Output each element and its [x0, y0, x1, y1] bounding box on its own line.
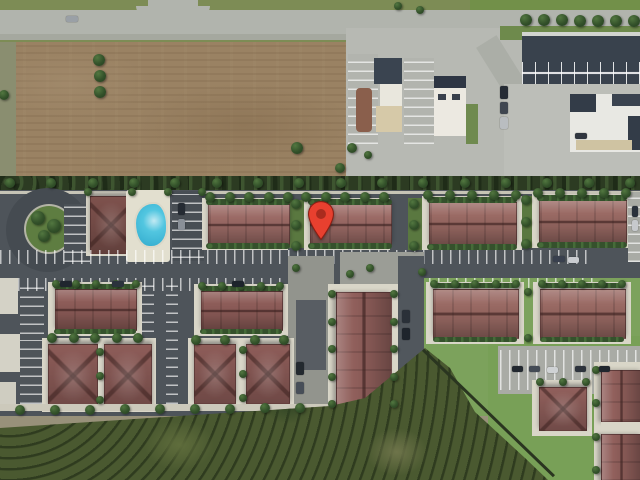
- tree: [460, 178, 470, 188]
- pin-icon: [308, 201, 334, 240]
- hedge: [206, 243, 290, 249]
- hedge: [540, 337, 624, 342]
- apartment-roof: [601, 434, 640, 480]
- tree: [625, 178, 635, 188]
- tree: [610, 15, 622, 27]
- tree: [94, 70, 106, 82]
- tree: [264, 192, 274, 202]
- restaurant-gable: [434, 76, 466, 88]
- tree: [328, 400, 336, 408]
- apartment-roof: [104, 344, 152, 408]
- tree: [409, 220, 419, 230]
- carport: [0, 334, 20, 372]
- tree: [292, 264, 300, 272]
- tree: [524, 334, 532, 342]
- tree: [501, 178, 511, 188]
- tree: [328, 318, 336, 326]
- car: [296, 382, 304, 394]
- tree: [128, 188, 136, 196]
- tree: [536, 378, 544, 386]
- tree: [218, 282, 226, 290]
- tree: [621, 188, 631, 198]
- tree: [112, 333, 122, 343]
- hedge: [537, 242, 627, 248]
- car: [500, 86, 508, 99]
- tree: [92, 280, 100, 288]
- tree: [133, 333, 143, 343]
- tree: [291, 241, 301, 251]
- retail-roof-dark: [612, 94, 640, 106]
- tree: [190, 404, 200, 414]
- car: [178, 219, 185, 230]
- tree: [366, 264, 374, 272]
- tree: [423, 190, 433, 200]
- apartment-roof: [201, 291, 283, 331]
- tree: [521, 217, 531, 227]
- tree: [574, 15, 586, 27]
- parking-col: [20, 340, 44, 404]
- field-edge: [0, 42, 16, 180]
- map-canvas[interactable]: [0, 0, 640, 480]
- tree: [512, 280, 520, 288]
- tree: [584, 178, 594, 188]
- tree: [364, 151, 372, 159]
- carport-roof: [522, 36, 640, 62]
- tree: [416, 6, 424, 14]
- tree: [239, 394, 247, 402]
- tree: [205, 192, 215, 202]
- tree: [347, 143, 357, 153]
- car: [296, 362, 304, 375]
- car: [575, 366, 586, 372]
- tree: [212, 178, 222, 188]
- pin-dot: [316, 209, 326, 219]
- hedge: [200, 329, 282, 334]
- apartment-roof: [194, 344, 236, 404]
- tree: [96, 348, 104, 356]
- apartment-roof: [540, 289, 626, 339]
- tree: [225, 192, 235, 202]
- tree: [340, 192, 350, 202]
- map-pin[interactable]: [308, 201, 334, 240]
- car: [60, 281, 72, 287]
- apartment-roof: [601, 370, 640, 422]
- tree: [533, 188, 543, 198]
- tree: [164, 188, 172, 196]
- tree: [291, 220, 301, 230]
- tree: [335, 163, 345, 173]
- drive-asphalt: [296, 300, 326, 370]
- apartment-roof: [48, 344, 98, 408]
- pool: [134, 202, 168, 248]
- car: [112, 281, 124, 287]
- tree: [52, 280, 60, 288]
- tree: [328, 345, 336, 353]
- tree: [492, 280, 500, 288]
- parking-col: [20, 282, 44, 334]
- car: [632, 206, 638, 217]
- tree: [467, 190, 477, 200]
- car: [402, 310, 410, 323]
- tree: [409, 241, 419, 251]
- tree: [328, 373, 336, 381]
- carport: [0, 382, 16, 406]
- tree: [379, 192, 389, 202]
- car: [402, 328, 410, 340]
- carport: [0, 278, 18, 314]
- tree: [96, 396, 104, 404]
- retail-roof-tan: [576, 140, 632, 150]
- hedge: [433, 337, 517, 342]
- tree: [599, 188, 609, 198]
- tree: [72, 280, 80, 288]
- apartment-roof: [433, 289, 519, 339]
- tree: [191, 335, 201, 345]
- tree: [582, 378, 590, 386]
- tree: [592, 433, 600, 441]
- bldg-walk: [601, 422, 640, 434]
- restaurant-vent: [452, 94, 460, 100]
- tree: [276, 282, 284, 290]
- playground: [356, 88, 372, 132]
- tree: [5, 178, 15, 188]
- tree: [85, 405, 95, 415]
- apartment-roof: [429, 202, 517, 246]
- tree: [198, 282, 206, 290]
- daycare-roof-tan: [376, 106, 402, 132]
- pin-body: [309, 202, 334, 240]
- tree: [291, 199, 301, 209]
- tree: [520, 14, 532, 26]
- apartment-roof: [208, 204, 290, 246]
- tree: [250, 335, 260, 345]
- tree: [390, 400, 398, 408]
- tree: [225, 404, 235, 414]
- tree: [198, 188, 206, 196]
- tree: [445, 190, 455, 200]
- car: [547, 367, 558, 373]
- daycare-roof-white: [380, 84, 402, 108]
- restaurant-lawn: [466, 104, 478, 144]
- car: [512, 366, 523, 372]
- apartment-roof: [539, 387, 587, 431]
- daycare-roof: [374, 58, 402, 84]
- tree: [38, 230, 50, 242]
- pool-east-stalls: [172, 194, 204, 258]
- tree: [390, 290, 398, 298]
- car: [66, 16, 78, 22]
- tree: [239, 346, 247, 354]
- tree: [578, 280, 586, 288]
- tree: [257, 282, 265, 290]
- tree: [538, 280, 546, 288]
- junction-flare: [136, 6, 210, 16]
- tree: [451, 280, 459, 288]
- car: [232, 281, 244, 287]
- car: [178, 203, 185, 215]
- tree: [360, 192, 370, 202]
- tree: [15, 405, 25, 415]
- tree: [409, 199, 419, 209]
- tree: [558, 280, 566, 288]
- tree: [521, 195, 531, 205]
- tree: [598, 280, 606, 288]
- tree: [628, 15, 640, 27]
- tree: [390, 373, 398, 381]
- tree: [291, 142, 303, 154]
- car: [575, 133, 587, 139]
- car: [568, 257, 579, 263]
- tree: [295, 403, 305, 413]
- parking-col: [166, 284, 178, 404]
- tree: [430, 280, 438, 288]
- tree: [559, 378, 567, 386]
- tree: [244, 192, 254, 202]
- dirt-field: [0, 42, 348, 180]
- parking-stalls: [404, 58, 434, 144]
- tree: [471, 280, 479, 288]
- tree: [129, 178, 139, 188]
- tree: [93, 54, 105, 66]
- car: [553, 256, 565, 262]
- tree: [69, 333, 79, 343]
- tree: [155, 404, 165, 414]
- tree: [418, 268, 426, 276]
- retail-roof-dark: [570, 94, 596, 112]
- tree: [239, 370, 247, 378]
- tree: [253, 178, 263, 188]
- restaurant-vent: [438, 94, 446, 100]
- tree: [390, 345, 398, 353]
- tree: [336, 178, 346, 188]
- tree: [94, 86, 106, 98]
- tree: [47, 333, 57, 343]
- tree: [394, 2, 402, 10]
- tree: [555, 188, 565, 198]
- tree: [31, 211, 45, 225]
- apartment-roof: [539, 200, 627, 244]
- apartment-roof: [246, 344, 290, 404]
- car: [599, 366, 610, 372]
- apartment-roof: [55, 289, 137, 331]
- tree: [524, 288, 532, 296]
- hedge: [308, 243, 392, 249]
- tree: [279, 335, 289, 345]
- tree: [521, 239, 531, 249]
- tree: [377, 178, 387, 188]
- tree: [346, 270, 354, 278]
- tree: [84, 188, 92, 196]
- car: [500, 117, 508, 129]
- tree: [618, 280, 626, 288]
- tree: [592, 15, 604, 27]
- tree: [328, 290, 336, 298]
- tree: [577, 188, 587, 198]
- tree: [592, 466, 600, 474]
- tree: [90, 333, 100, 343]
- tree: [132, 280, 140, 288]
- tree: [88, 178, 98, 188]
- solar-panels: [522, 62, 640, 84]
- tree: [96, 372, 104, 380]
- tree: [47, 219, 61, 233]
- tree: [50, 405, 60, 415]
- car: [632, 220, 638, 231]
- tree: [390, 318, 398, 326]
- tree: [511, 190, 521, 200]
- car: [500, 102, 508, 114]
- car: [529, 366, 540, 372]
- tree: [489, 190, 499, 200]
